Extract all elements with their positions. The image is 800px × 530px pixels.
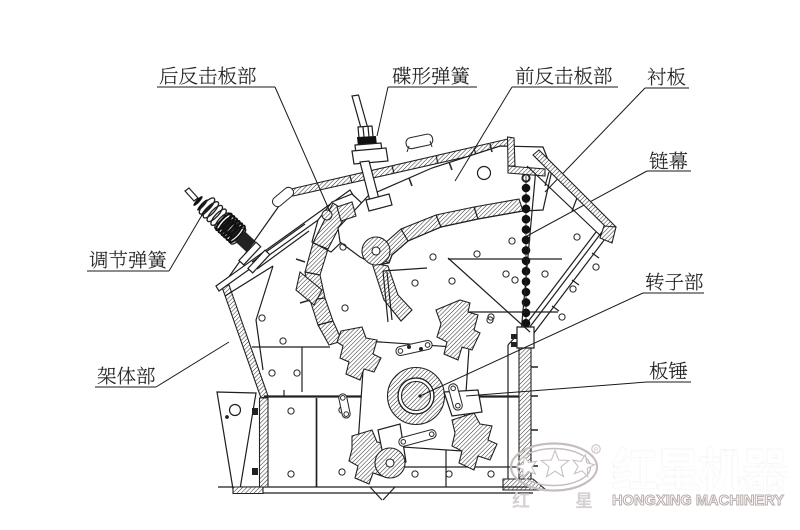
svg-text:HONGXING MACHINERY: HONGXING MACHINERY (612, 492, 784, 509)
svg-text:R: R (594, 448, 599, 454)
